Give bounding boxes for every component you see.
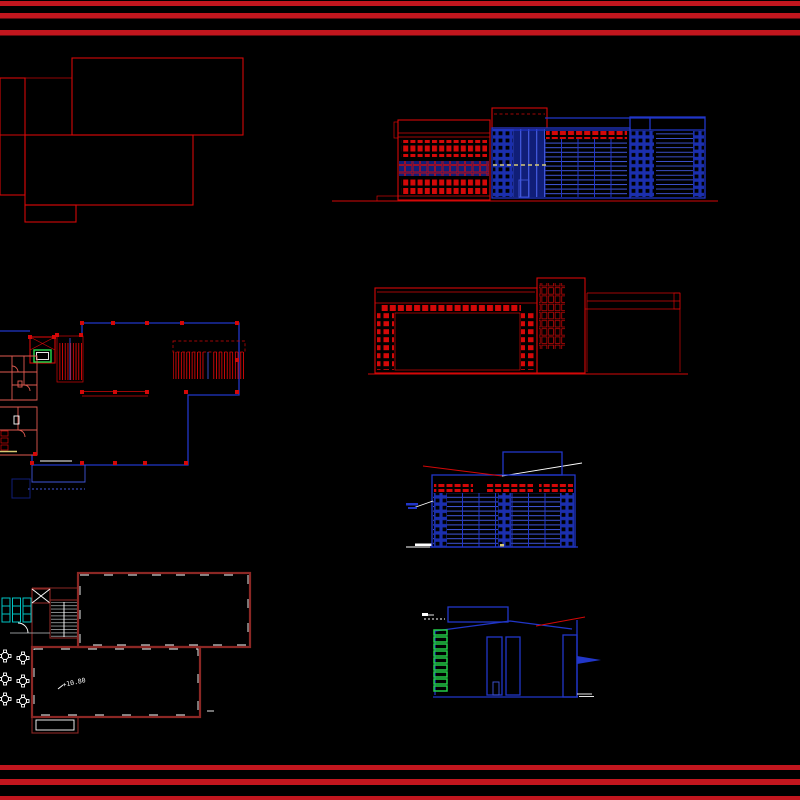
right-wing	[585, 293, 680, 372]
door-arc	[12, 366, 18, 372]
kitchen-equipment	[2, 598, 31, 622]
dining-room	[32, 647, 200, 717]
stair-tower	[537, 278, 585, 373]
roof-monitor	[448, 607, 508, 622]
front-elevation	[332, 108, 718, 201]
entry-vestibule	[32, 717, 78, 733]
border-bottom	[0, 765, 800, 800]
shelf	[1, 438, 8, 443]
yellow-mark	[500, 544, 504, 547]
roof-hatch-left-strip	[0, 78, 25, 195]
rear-elevation	[406, 452, 582, 547]
level-annotation	[406, 501, 433, 509]
window-ticks	[34, 649, 198, 715]
border-top-line-2	[0, 13, 800, 19]
stair-core-west	[57, 336, 83, 382]
left-wing	[394, 120, 490, 200]
window-strip	[498, 493, 511, 547]
floor-level-text: +10.80	[62, 676, 87, 689]
window-strip-right	[521, 313, 536, 370]
door	[493, 682, 499, 695]
border-top-line-3	[0, 30, 800, 36]
canopy-wedge	[577, 656, 601, 664]
roof-hatch-lower	[25, 135, 193, 205]
window-strip-left	[377, 313, 394, 370]
roof-hatch-upper	[72, 58, 243, 135]
level-label: +10.80	[58, 676, 86, 689]
row-gap	[533, 484, 539, 492]
window-strip	[434, 493, 447, 547]
louver-screen	[395, 313, 520, 370]
entry-step	[415, 544, 432, 547]
flag-annotation	[422, 613, 445, 619]
upper-floor-plan	[0, 321, 245, 498]
shelf	[1, 445, 8, 450]
shelf	[1, 431, 8, 436]
parapet-flange	[394, 122, 398, 138]
door-arc	[18, 623, 28, 633]
window-strip-right	[693, 131, 704, 197]
stair-dashed-outline	[173, 341, 245, 352]
clerestory-row	[546, 131, 627, 139]
hall-room	[78, 573, 250, 647]
entrance-canopy	[12, 461, 85, 498]
planter-outline	[12, 479, 30, 498]
stair-core-hall	[173, 341, 245, 379]
window-rows-lower	[401, 177, 487, 194]
center-shafts	[487, 637, 520, 695]
window-strip	[560, 493, 574, 547]
end-elevation	[422, 607, 601, 697]
main-block	[375, 288, 537, 373]
roof-canopy-outline	[25, 205, 76, 222]
dining-tables	[0, 650, 29, 707]
window-ticks	[80, 575, 248, 645]
clerestory-row	[434, 484, 573, 492]
green-shaft	[434, 630, 447, 691]
tower-parapet	[492, 108, 547, 128]
side-elevation	[368, 278, 688, 374]
window-rows-upper	[401, 140, 487, 157]
window-strip-mid	[630, 131, 654, 197]
roof-monitor	[503, 452, 562, 475]
border-bottom-line-1	[0, 765, 800, 770]
right-floor-bands	[656, 131, 694, 197]
butterfly-roof-right	[502, 463, 582, 476]
red-roof-line	[536, 617, 585, 626]
elevator-shaft	[30, 337, 55, 363]
roof-gap-outline	[25, 78, 72, 135]
roof-plan	[0, 58, 243, 222]
row-gap	[473, 484, 487, 492]
door-arc	[18, 430, 25, 437]
tower-grid	[539, 283, 565, 349]
ground-floor-plan: +10.80	[0, 573, 250, 733]
border-bottom-line-3	[0, 796, 800, 800]
cad-sheet: +10.80	[0, 0, 800, 800]
west-rooms-lower	[0, 407, 37, 456]
glazing-band-grid	[399, 161, 489, 176]
right-shaft	[563, 635, 577, 697]
border-top	[0, 1, 800, 36]
columns	[28, 321, 239, 465]
window-row	[381, 305, 521, 312]
right-wing	[630, 117, 705, 198]
entry-step	[377, 196, 398, 201]
door-arc	[24, 385, 30, 391]
window-strip-left	[493, 129, 513, 197]
floor-bands	[545, 139, 627, 197]
stair-tower	[492, 108, 547, 128]
pavement-marks	[577, 694, 594, 697]
border-top-line-1	[0, 1, 800, 6]
border-bottom-line-2	[0, 779, 800, 785]
